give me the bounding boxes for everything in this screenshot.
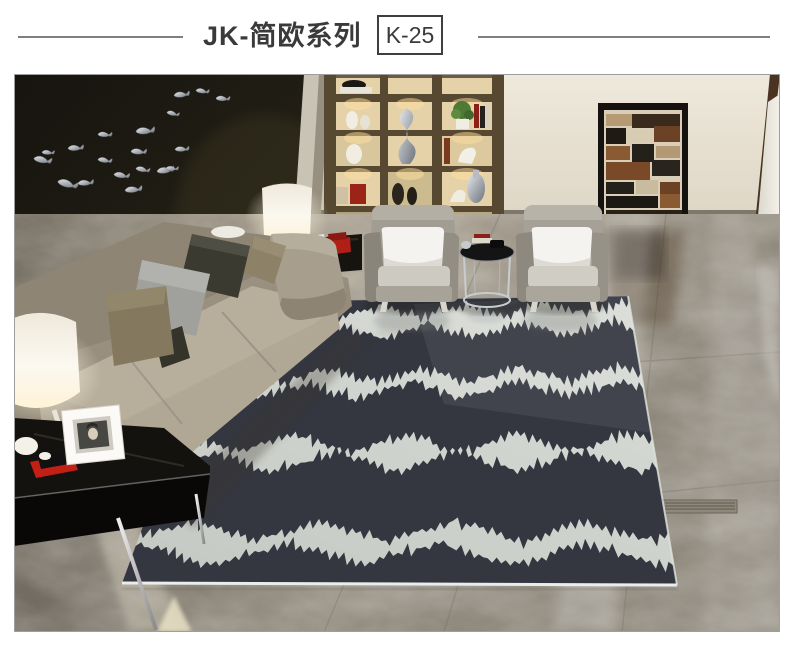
chair-seat	[378, 266, 450, 288]
page-title: JK-简欧系列	[203, 14, 362, 53]
table-lamp-shade	[262, 184, 312, 242]
white-vase-2	[346, 144, 362, 164]
photo-frame	[61, 405, 124, 465]
beige-box	[336, 187, 348, 204]
rug-edge-binding	[122, 583, 677, 585]
table-silver-pot	[461, 241, 471, 249]
dark-vase	[392, 183, 404, 205]
chair-base	[376, 286, 452, 302]
catalog-page: { "header": { "title": "JK-简欧系列", "model…	[0, 0, 790, 660]
room-scene	[14, 74, 780, 632]
table-black-box	[490, 240, 504, 248]
white-books	[340, 87, 372, 93]
plant-pot	[456, 119, 469, 129]
chair-base	[526, 286, 600, 302]
white-cup	[39, 452, 51, 460]
decor-screen	[598, 103, 688, 228]
white-vase	[346, 111, 358, 129]
white-back-pillow	[211, 226, 245, 238]
floor-lamp-shade	[14, 313, 80, 408]
header-rule-left	[18, 36, 183, 38]
chair-seat	[528, 266, 598, 288]
table-books	[472, 238, 492, 243]
white-teapot	[14, 437, 38, 455]
chair-reflection	[528, 310, 594, 336]
rug-edge-shadow	[122, 588, 677, 590]
floor-vent	[663, 500, 737, 513]
model-badge: K-25	[377, 15, 443, 55]
header-rule-right	[478, 36, 770, 38]
room-photo	[14, 74, 780, 632]
red-books	[350, 184, 366, 204]
chair-reflection	[379, 310, 449, 336]
